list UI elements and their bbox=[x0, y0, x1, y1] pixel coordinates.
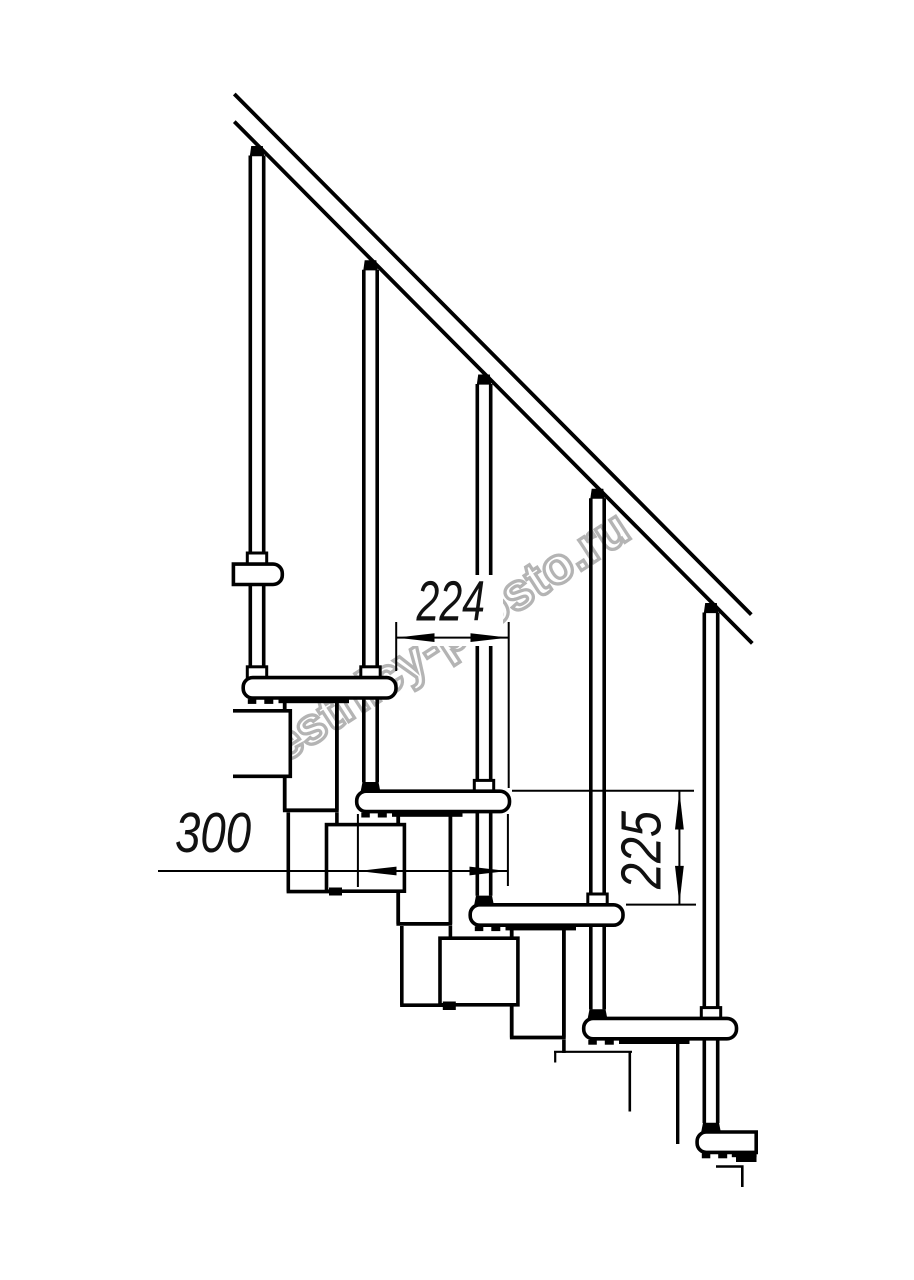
svg-text:224: 224 bbox=[416, 569, 485, 633]
svg-text:225: 225 bbox=[610, 810, 673, 890]
svg-text:300: 300 bbox=[175, 800, 251, 864]
